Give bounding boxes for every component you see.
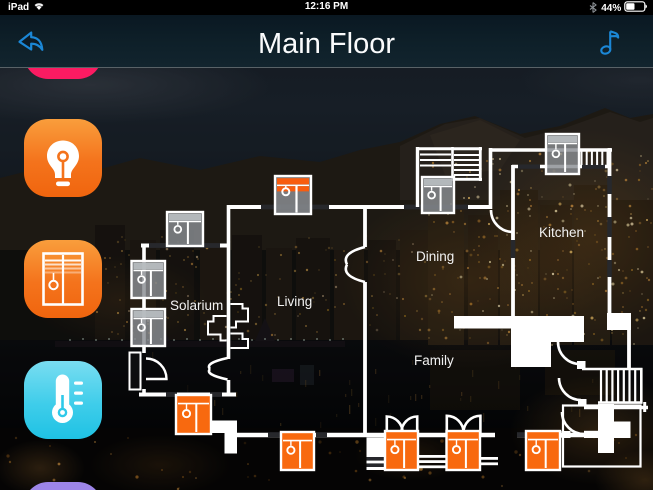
svg-text:Dining: Dining [416, 249, 454, 264]
svg-text:Family: Family [414, 353, 454, 368]
svg-text:Solarium: Solarium [170, 298, 223, 313]
svg-text:Living: Living [277, 294, 312, 309]
svg-text:Kitchen: Kitchen [539, 225, 584, 240]
